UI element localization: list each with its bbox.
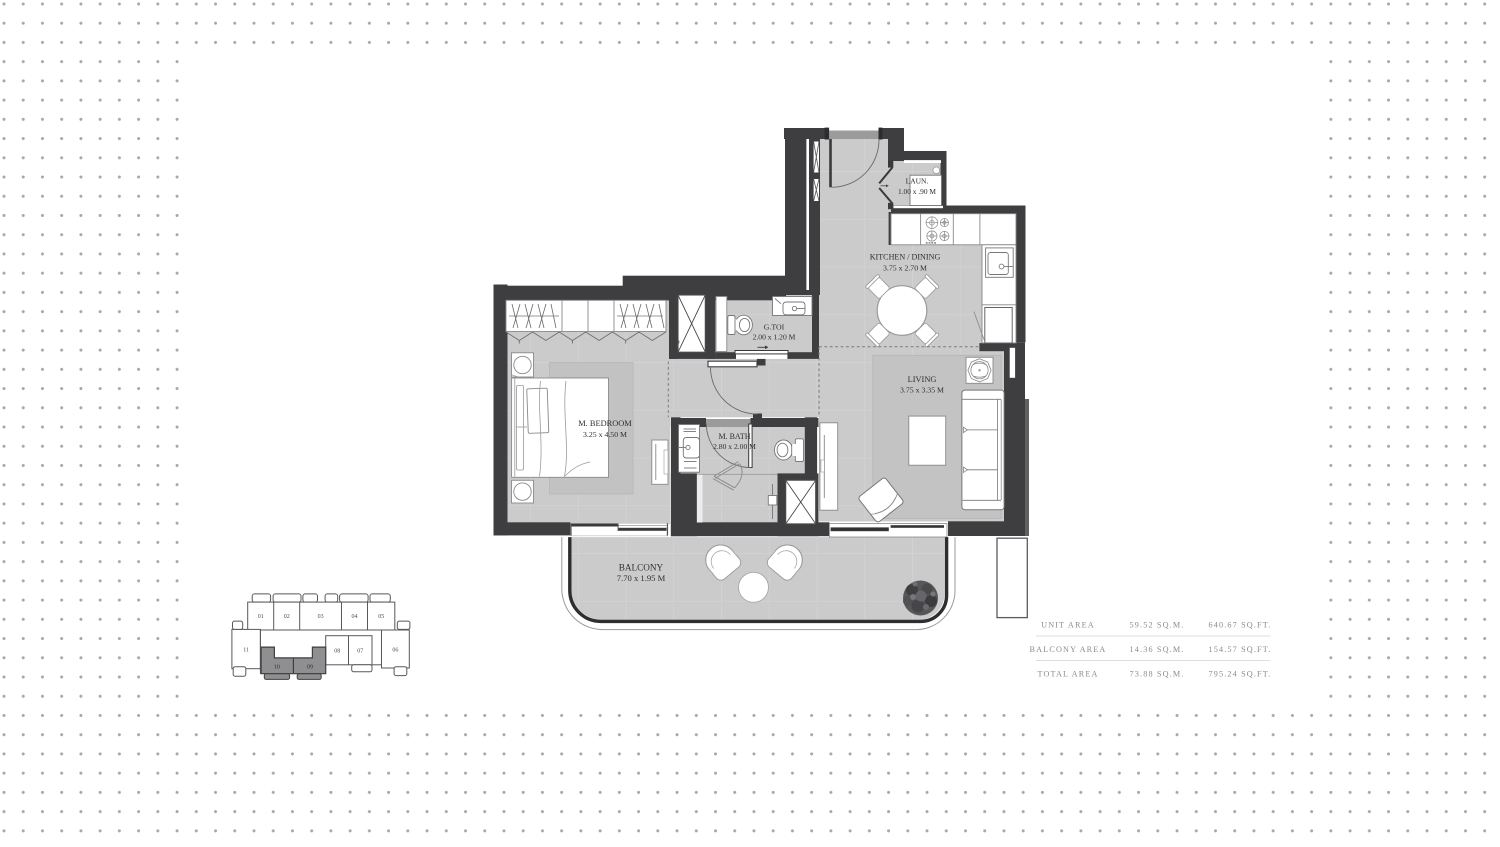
svg-text:10: 10	[274, 665, 280, 671]
svg-text:3.75 x 3.35 M: 3.75 x 3.35 M	[900, 386, 944, 395]
svg-text:59.52 SQ.M.: 59.52 SQ.M.	[1130, 621, 1185, 630]
svg-text:BALCONY AREA: BALCONY AREA	[1030, 645, 1107, 654]
svg-text:73.88 SQ.M.: 73.88 SQ.M.	[1130, 670, 1185, 679]
svg-text:LIVING: LIVING	[908, 375, 937, 384]
svg-text:G.TOI: G.TOI	[764, 323, 785, 332]
svg-text:02: 02	[284, 614, 290, 620]
svg-text:2.00 x 1.20 M: 2.00 x 1.20 M	[753, 333, 796, 342]
svg-text:640.67 SQ.FT.: 640.67 SQ.FT.	[1208, 621, 1271, 630]
svg-text:KITCHEN / DINING: KITCHEN / DINING	[870, 253, 941, 262]
svg-text:1.00 x .90 M: 1.00 x .90 M	[898, 187, 936, 196]
svg-text:2.80 x 2.00 M: 2.80 x 2.00 M	[713, 442, 756, 451]
svg-text:08: 08	[334, 648, 340, 654]
svg-text:09: 09	[307, 665, 313, 671]
svg-text:795.24 SQ.FT.: 795.24 SQ.FT.	[1208, 670, 1271, 679]
svg-text:04: 04	[352, 614, 358, 620]
svg-text:BALCONY: BALCONY	[619, 563, 664, 573]
svg-text:11: 11	[243, 647, 249, 653]
svg-text:05: 05	[378, 614, 384, 620]
svg-text:154.57 SQ.FT.: 154.57 SQ.FT.	[1208, 645, 1271, 654]
svg-text:07: 07	[357, 648, 363, 654]
svg-text:M. BATH: M. BATH	[718, 432, 750, 441]
svg-text:UNIT AREA: UNIT AREA	[1041, 621, 1095, 630]
svg-text:M. BEDROOM: M. BEDROOM	[578, 419, 632, 428]
svg-text:LAUN.: LAUN.	[906, 177, 929, 186]
svg-text:14.36 SQ.M.: 14.36 SQ.M.	[1130, 645, 1185, 654]
svg-text:03: 03	[318, 614, 324, 620]
svg-text:3.25 x 4.50 M: 3.25 x 4.50 M	[583, 430, 627, 439]
svg-text:06: 06	[392, 647, 398, 653]
svg-text:01: 01	[258, 614, 264, 620]
svg-text:TOTAL AREA: TOTAL AREA	[1037, 670, 1098, 679]
svg-text:7.70 x 1.95 M: 7.70 x 1.95 M	[617, 573, 666, 583]
svg-text:3.75 x 2.70 M: 3.75 x 2.70 M	[883, 264, 927, 273]
